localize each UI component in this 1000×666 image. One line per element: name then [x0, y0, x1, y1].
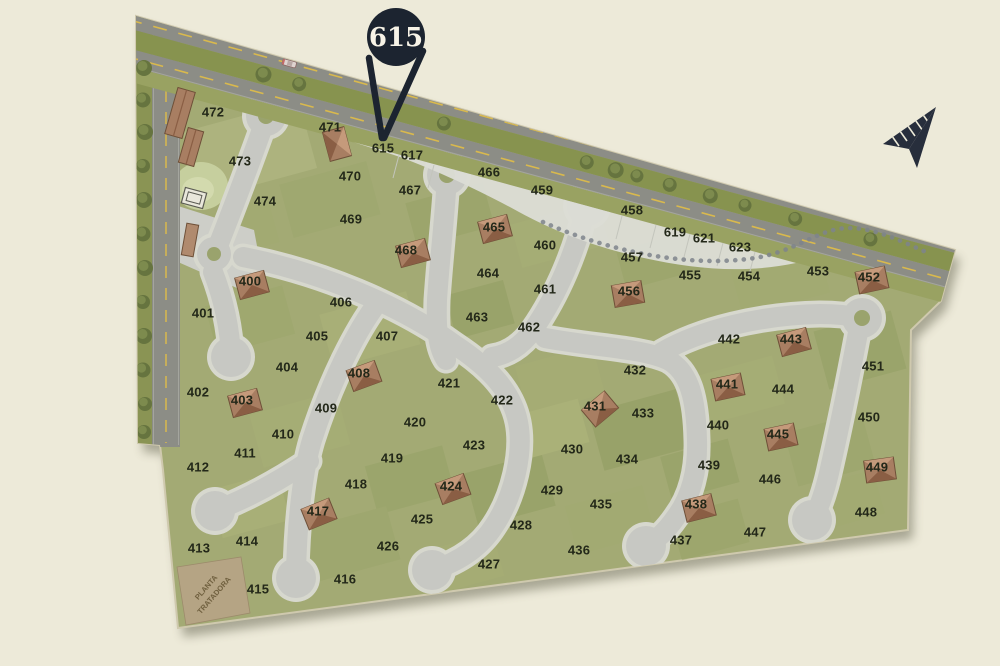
- map-canvas: PLANTA TRATADORA 615: [0, 0, 1000, 666]
- subdivision-map: PLANTA TRATADORA 615 4724716156174734704…: [0, 0, 1000, 666]
- house-icon: [611, 281, 644, 308]
- callout-label: 615: [369, 23, 423, 53]
- house-icon: [864, 457, 897, 483]
- compass-north-icon: [883, 107, 936, 168]
- treatment-plant-parcel: PLANTA TRATADORA: [177, 557, 250, 625]
